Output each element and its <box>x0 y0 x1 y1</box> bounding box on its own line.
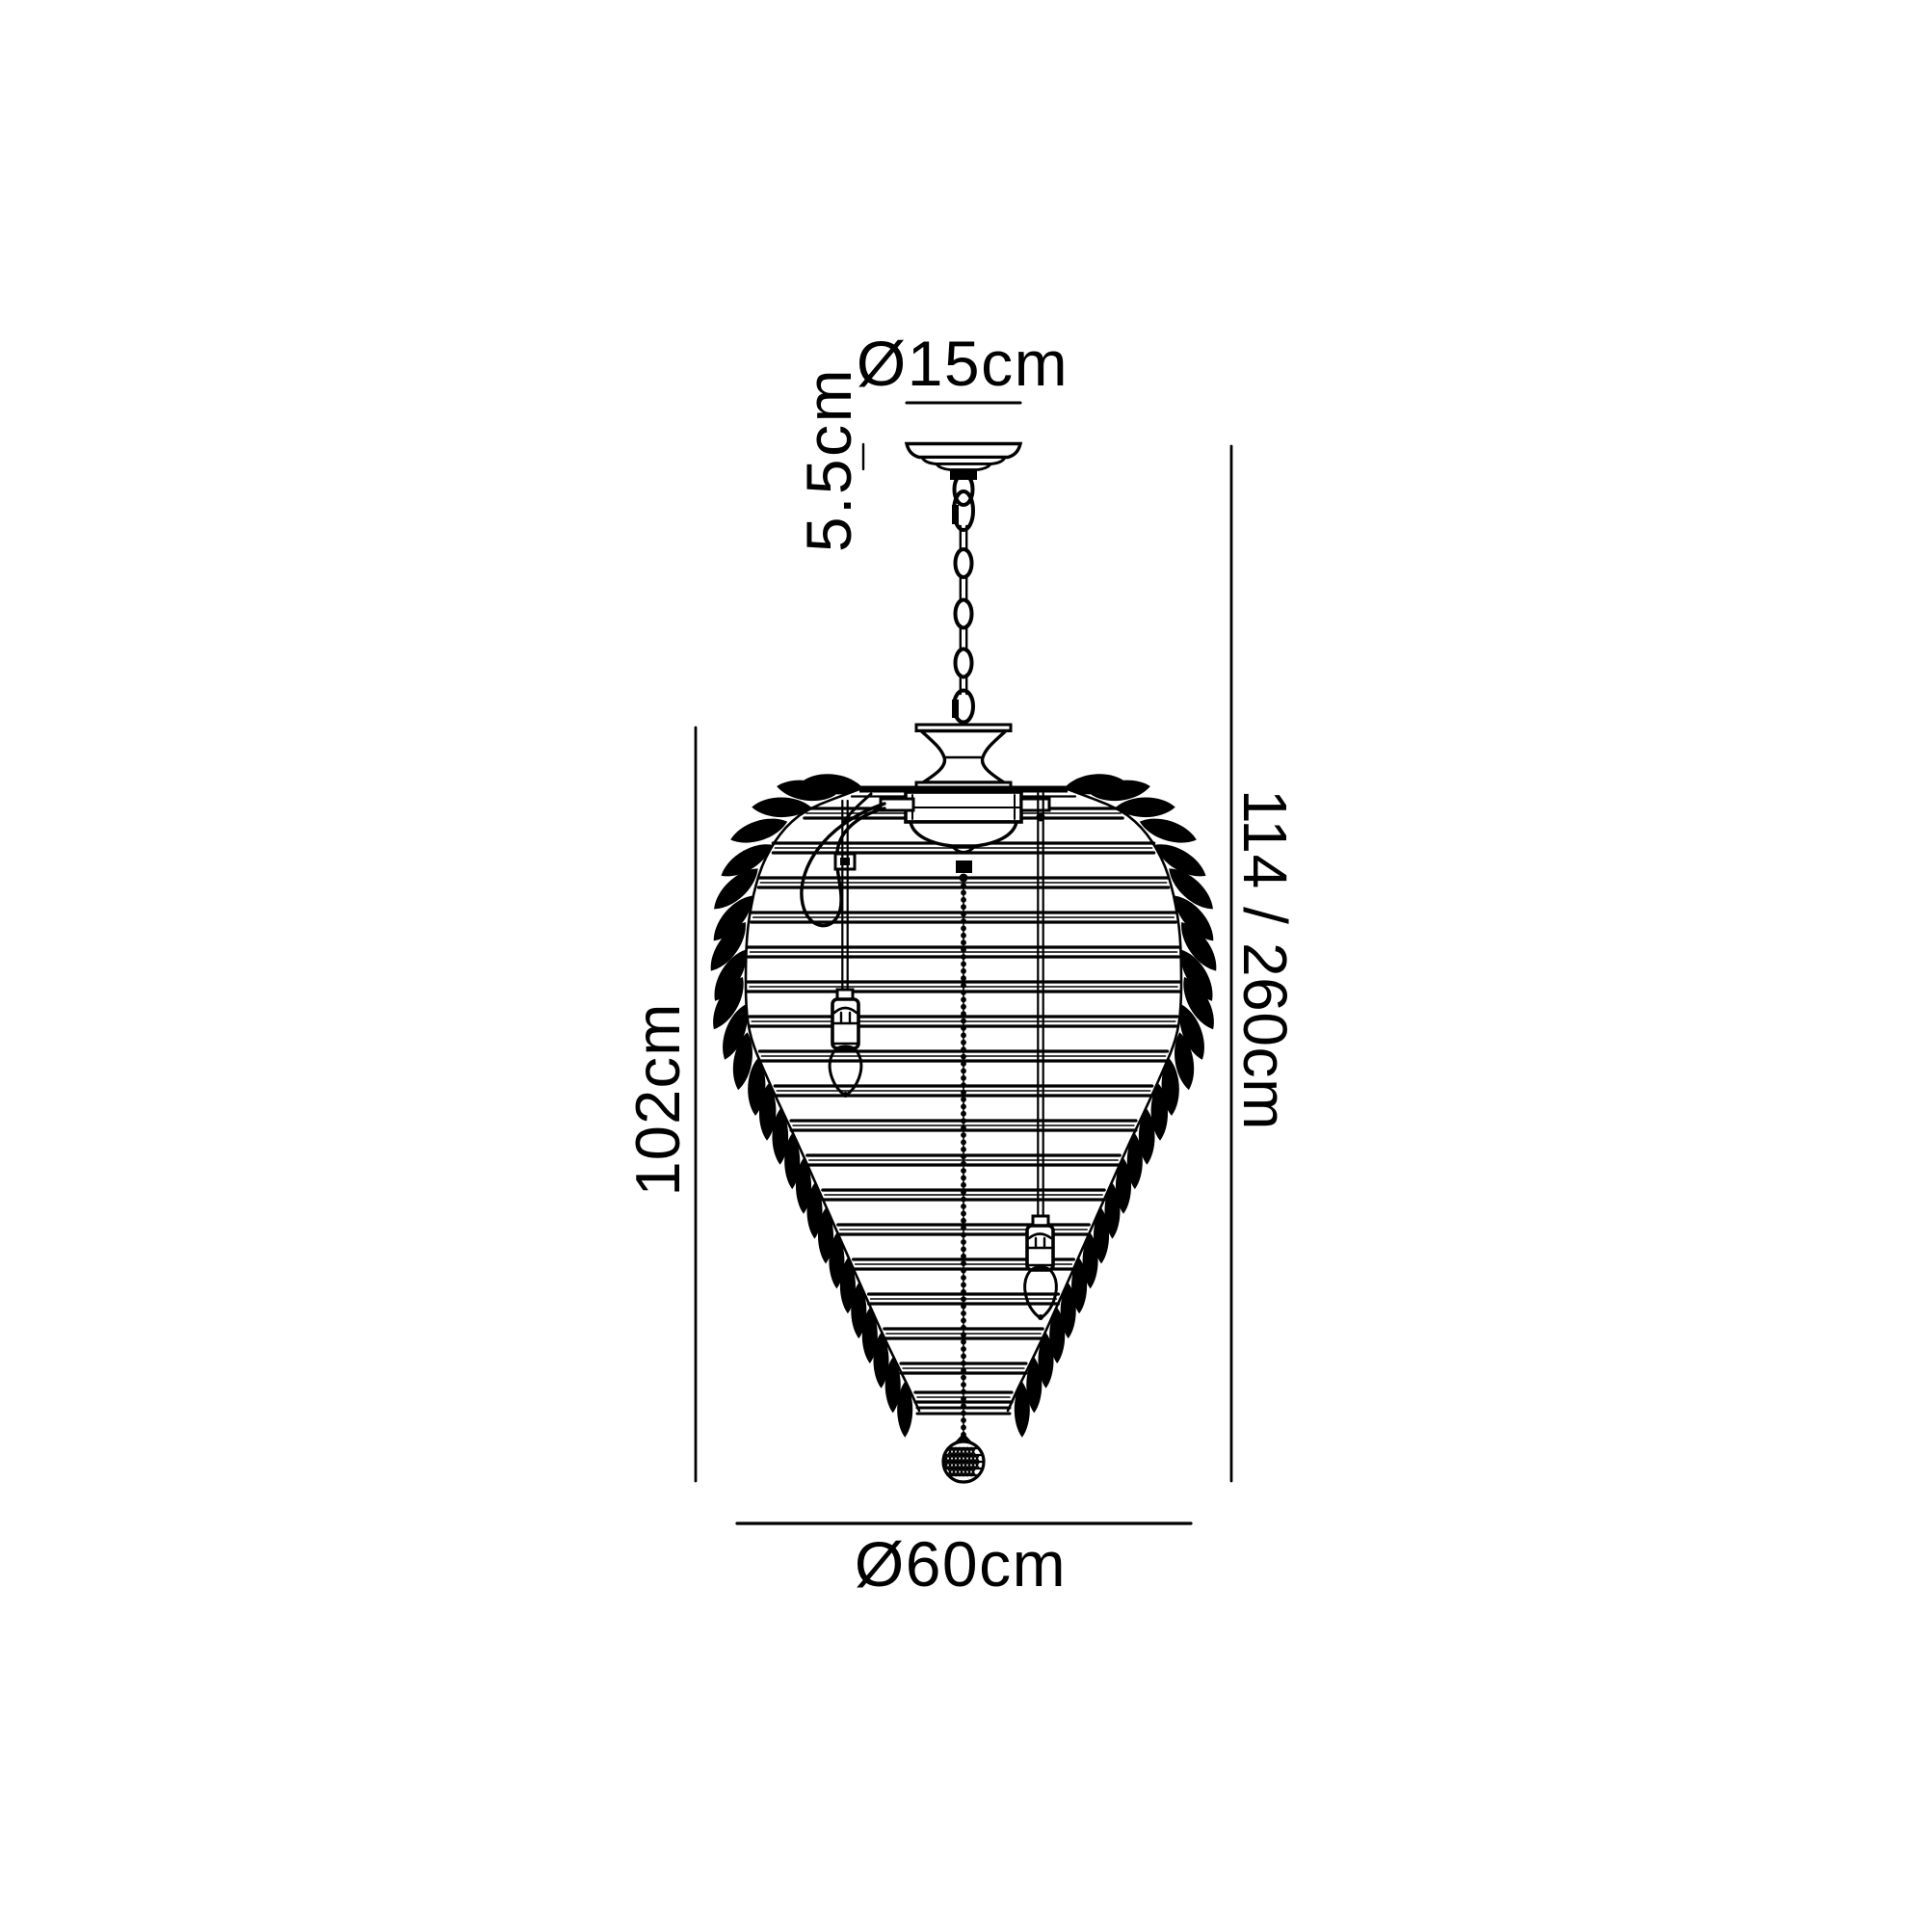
svg-text:5.5cm: 5.5cm <box>793 367 864 552</box>
svg-text:114 / 260cm: 114 / 260cm <box>1230 789 1300 1130</box>
svg-text:102cm: 102cm <box>622 1002 693 1196</box>
svg-text:Ø15cm: Ø15cm <box>857 328 1069 399</box>
svg-text:Ø60cm: Ø60cm <box>855 1528 1067 1600</box>
